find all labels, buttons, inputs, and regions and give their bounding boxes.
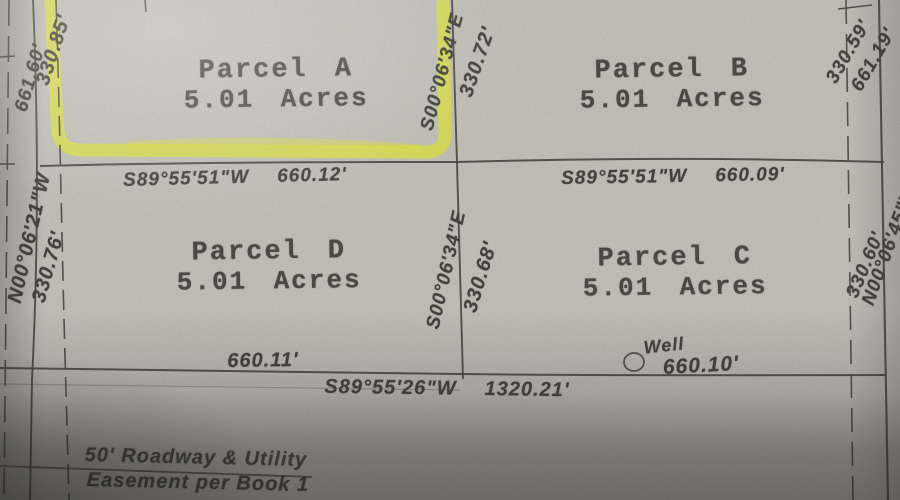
mid-right-distance: 660.09' [715, 164, 785, 187]
parcel-b-name: Parcel B [579, 55, 764, 87]
mid-left-distance: 660.12' [277, 164, 347, 188]
well-symbol [624, 353, 644, 371]
mid-left-bearing: S89°55'51"W [123, 167, 250, 192]
south-boundary-line [0, 368, 886, 375]
south-bearing: S89°55'26"W [324, 376, 457, 401]
north-tick-left [145, 0, 146, 12]
east-tick-upper [838, 5, 872, 9]
parcel-b-label: Parcel B 5.01 Acres [579, 55, 765, 115]
parcel-c-area: 5.01 Acres [583, 272, 768, 303]
south-left-distance-label: 660.11' [227, 349, 299, 373]
parcel-a-label: Parcel A 5.01 Acres [183, 55, 369, 115]
west-tick-upper [0, 56, 15, 57]
parcel-b-area: 5.01 Acres [580, 84, 765, 115]
parcel-d-area: 5.01 Acres [177, 266, 362, 297]
south-distance: 1320.21' [484, 378, 569, 402]
parcel-c-label: Parcel C 5.01 Acres [582, 243, 768, 303]
parcel-a-name: Parcel A [183, 55, 368, 87]
west-section-dashed-line [4, 0, 9, 500]
plat-map-scan: Parcel A 5.01 Acres Parcel B 5.01 Acres … [0, 0, 900, 500]
parcel-d-label: Parcel D 5.01 Acres [176, 237, 362, 297]
mid-right-boundary-label: S89°55'51"W 660.09' [561, 164, 785, 190]
mid-right-bearing: S89°55'51"W [561, 166, 688, 190]
well-label: Well [643, 333, 686, 358]
south-right-distance-label: 660.10' [662, 352, 739, 380]
parcel-a-area: 5.01 Acres [184, 84, 369, 115]
south-boundary-label: S89°55'26"W 1320.21' [324, 376, 570, 402]
parcel-d-name: Parcel D [176, 237, 361, 269]
parcel-c-name: Parcel C [582, 243, 767, 275]
